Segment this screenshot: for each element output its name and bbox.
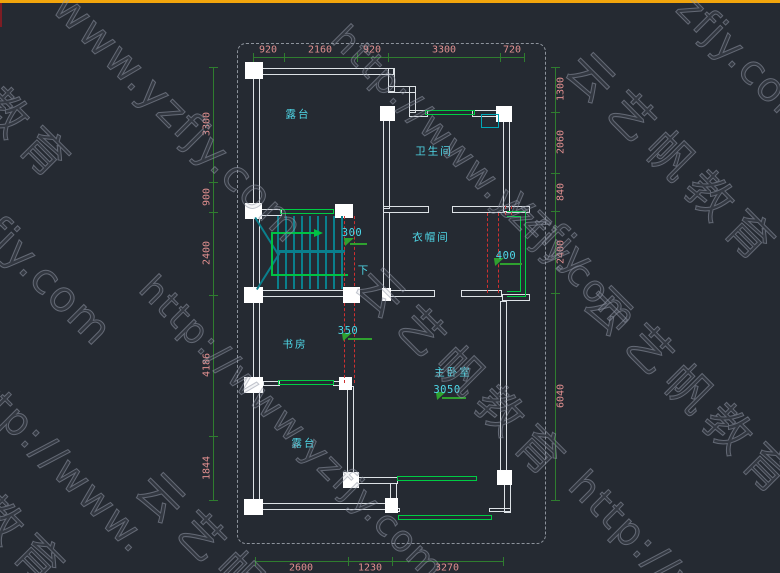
dim-text: 1230 xyxy=(358,563,382,573)
opening-dim-300: 300 xyxy=(342,227,362,239)
wall-segment xyxy=(383,115,390,209)
wall-segment xyxy=(389,290,435,297)
column xyxy=(245,203,262,219)
dim-text: 2160 xyxy=(308,45,332,56)
wall-segment xyxy=(262,290,345,297)
dim-text: 1300 xyxy=(556,77,567,101)
leader-line xyxy=(500,263,522,265)
dim-text: 840 xyxy=(556,183,567,201)
window xyxy=(278,380,334,385)
opening-dashed-line xyxy=(511,206,512,215)
stair-path xyxy=(271,232,273,276)
opening-dim-350: 350 xyxy=(338,325,358,337)
stair-down-label: 下 xyxy=(358,263,371,278)
cad-drawing-canvas[interactable]: 露台 卫生间 衣帽间 书房 主卧室 露台 下 300 400 350 3050 … xyxy=(0,0,780,573)
leader-line xyxy=(348,338,372,340)
column xyxy=(244,287,263,303)
watermark-text: zfjy.com xyxy=(667,0,780,144)
opening-dashed-line xyxy=(344,303,345,383)
window-edge-accent xyxy=(0,3,2,27)
watermark-text: 云艺帆教育 xyxy=(553,35,780,280)
dim-text: 2600 xyxy=(289,563,313,573)
dim-text: 1844 xyxy=(202,456,213,480)
stair-rail xyxy=(277,250,345,253)
dim-text: 3300 xyxy=(202,112,213,136)
wall-segment xyxy=(503,115,510,212)
wall-segment xyxy=(489,508,511,512)
dim-text: 720 xyxy=(503,45,521,56)
dim-text: 2400 xyxy=(202,241,213,265)
wall-segment xyxy=(253,68,394,75)
opening-dashed-line xyxy=(354,303,355,383)
dim-text: 2060 xyxy=(556,130,567,154)
column xyxy=(339,377,352,390)
column xyxy=(343,287,360,303)
column xyxy=(244,499,263,515)
watermark-text: 云艺帆教育 xyxy=(571,268,780,513)
room-label-cloakroom: 衣帽间 xyxy=(412,230,450,245)
watermark-text: yzfjy.com xyxy=(0,170,123,355)
bathroom-vanity xyxy=(481,114,499,128)
column xyxy=(380,106,395,121)
watermark-text: 教育 xyxy=(0,478,87,573)
wall-segment xyxy=(347,386,354,476)
dimension-line-top xyxy=(253,57,524,58)
room-label-master-bedroom: 主卧室 xyxy=(434,365,472,380)
dim-text: 900 xyxy=(202,188,213,206)
dim-text: 920 xyxy=(363,45,381,56)
room-label-study: 书房 xyxy=(283,337,308,352)
opening-dashed-line xyxy=(487,213,488,293)
window xyxy=(397,476,477,481)
dim-text: 3270 xyxy=(435,563,459,573)
watermark-text: http://www xyxy=(559,462,762,573)
dim-text: 6040 xyxy=(556,384,567,408)
window-accent-bar xyxy=(0,0,780,3)
dim-text: 4186 xyxy=(202,353,213,377)
dim-text: 2400 xyxy=(556,240,567,264)
column xyxy=(244,377,263,393)
stair-path xyxy=(272,232,314,234)
dimension-line-left xyxy=(213,67,214,500)
window xyxy=(398,515,492,520)
dim-text: 920 xyxy=(259,45,277,56)
room-label-terrace-top: 露台 xyxy=(286,107,311,122)
opening-dim-400: 400 xyxy=(496,250,516,262)
room-label-terrace-bottom: 露台 xyxy=(292,436,317,451)
column xyxy=(385,498,398,513)
master-width-dim: 3050 xyxy=(433,384,460,396)
wall-segment xyxy=(461,290,502,297)
stair-path xyxy=(271,274,348,276)
stair-direction-arrow xyxy=(314,229,323,237)
window xyxy=(425,110,475,115)
leader-line xyxy=(442,397,466,399)
wall-segment xyxy=(409,86,416,113)
leader-line xyxy=(350,243,367,245)
column xyxy=(382,288,391,301)
window xyxy=(280,209,334,214)
column xyxy=(245,62,263,79)
opening-dashed-line xyxy=(505,206,506,215)
watermark-text: http://www. xyxy=(0,352,158,563)
watermark-text: 云艺帆教育 xyxy=(0,0,93,197)
column xyxy=(343,472,359,488)
wall-segment xyxy=(253,503,390,510)
dim-text: 3300 xyxy=(432,45,456,56)
wall-segment xyxy=(383,212,390,292)
column xyxy=(497,470,512,485)
wall-segment xyxy=(500,301,507,478)
room-label-bathroom: 卫生间 xyxy=(415,144,453,159)
